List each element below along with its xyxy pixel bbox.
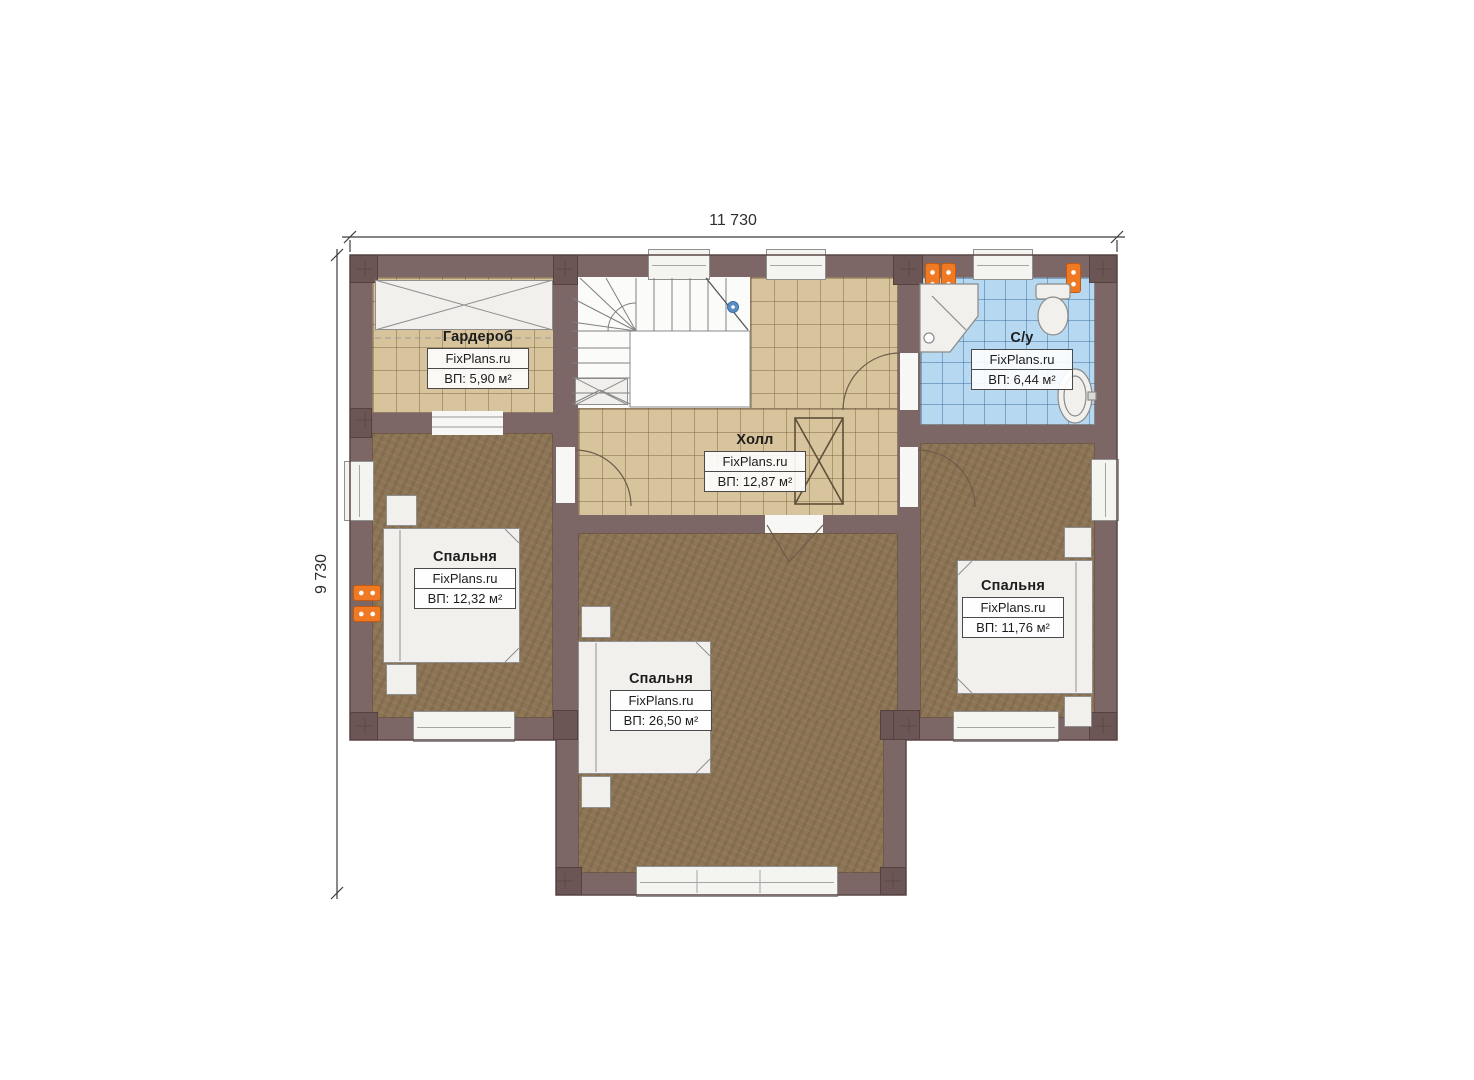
hall-shelf [575,378,628,405]
pier-protrusion-bl [556,867,582,895]
wall-bathroom-bottom [920,425,1095,443]
door-opening-wardrobe [432,411,503,435]
pier-corner-bottom-right [1089,712,1117,740]
nightstand-center-top [581,606,611,638]
room-info-box: FixPlans.ru ВП: 12,32 м² [414,568,516,609]
room-area: ВП: 12,87 м² [705,472,805,491]
brand-watermark: FixPlans.ru [972,350,1072,370]
door-opening-bedroom-right [900,447,918,507]
brand-watermark: FixPlans.ru [705,452,805,472]
room-name: Спальня [601,671,721,687]
radiator-bedroom-left-1 [353,585,381,601]
room-area: ВП: 12,32 м² [415,589,515,608]
room-info-box: FixPlans.ru ВП: 5,90 м² [427,348,529,389]
dimension-top-value: 11 730 [683,212,783,230]
room-name: Спальня [953,578,1073,594]
radiator-bathroom-3 [1066,263,1081,293]
wall-hall-bedroom-center [578,515,898,533]
brand-watermark: FixPlans.ru [611,691,711,711]
window-bottom-bedroom-right [953,711,1059,742]
room-name: Холл [695,432,815,448]
window-bottom-protrusion [636,866,838,897]
brand-watermark: FixPlans.ru [428,349,528,369]
radiator-bedroom-left-2 [353,606,381,622]
pier-corner-top-left [350,255,378,283]
window-right-bedroom-right [1091,459,1119,521]
radiator-bathroom-1 [925,263,940,293]
radiator-bathroom-2 [941,263,956,293]
pier-corner-top-right [1089,255,1117,283]
nightstand-center-bottom [581,776,611,808]
room-area: ВП: 5,90 м² [428,369,528,388]
pier-corner-bottom-left [350,712,378,740]
door-opening-bedroom-left [556,447,575,503]
window-top-stairs [648,249,710,280]
nightstand-right-bottom [1064,696,1092,727]
window-top-bathroom [973,249,1033,280]
room-area: ВП: 6,44 м² [972,370,1072,389]
pier-top-2 [893,255,923,285]
room-label-bathroom: С/у FixPlans.ru ВП: 6,44 м² [962,330,1082,390]
room-info-box: FixPlans.ru ВП: 12,87 м² [704,451,806,492]
door-opening-bedroom-center [765,515,823,533]
room-label-hall: Холл FixPlans.ru ВП: 12,87 м² [695,432,815,492]
room-area: ВП: 11,76 м² [963,618,1063,637]
room-name: Спальня [405,549,525,565]
pier-bottom-1 [553,710,578,740]
room-info-box: FixPlans.ru ВП: 6,44 м² [971,349,1073,390]
floor-plan-canvas: Гардероб FixPlans.ru ВП: 5,90 м² Холл Fi… [0,0,1474,1080]
brand-watermark: FixPlans.ru [963,598,1063,618]
pier-protrusion-br [880,867,906,895]
nightstand-left-bottom [386,664,417,695]
room-label-bedroom-left: Спальня FixPlans.ru ВП: 12,32 м² [405,549,525,609]
nightstand-left-top [386,495,417,526]
brand-watermark: FixPlans.ru [415,569,515,589]
room-name: С/у [962,330,1082,346]
room-info-box: FixPlans.ru ВП: 26,50 м² [610,690,712,731]
nightstand-right-top [1064,527,1092,558]
room-label-wardrobe: Гардероб FixPlans.ru ВП: 5,90 м² [418,329,538,389]
wardrobe-unit [375,280,553,330]
pier-left-junction [350,408,372,438]
dimension-left-value: 9 730 [313,534,331,614]
room-area: ВП: 26,50 м² [611,711,711,730]
room-label-bedroom-right: Спальня FixPlans.ru ВП: 11,76 м² [953,578,1073,638]
room-info-box: FixPlans.ru ВП: 11,76 м² [962,597,1064,638]
window-bottom-bedroom-left [413,711,515,742]
room-label-bedroom-center: Спальня FixPlans.ru ВП: 26,50 м² [601,671,721,731]
room-name: Гардероб [418,329,538,345]
window-top-hall [766,249,826,280]
pier-bottom-3 [893,710,920,740]
pier-top-1 [553,255,578,285]
dimension-line-left [331,249,343,899]
window-left-bedroom-left [344,461,374,521]
door-opening-bathroom [900,353,918,410]
